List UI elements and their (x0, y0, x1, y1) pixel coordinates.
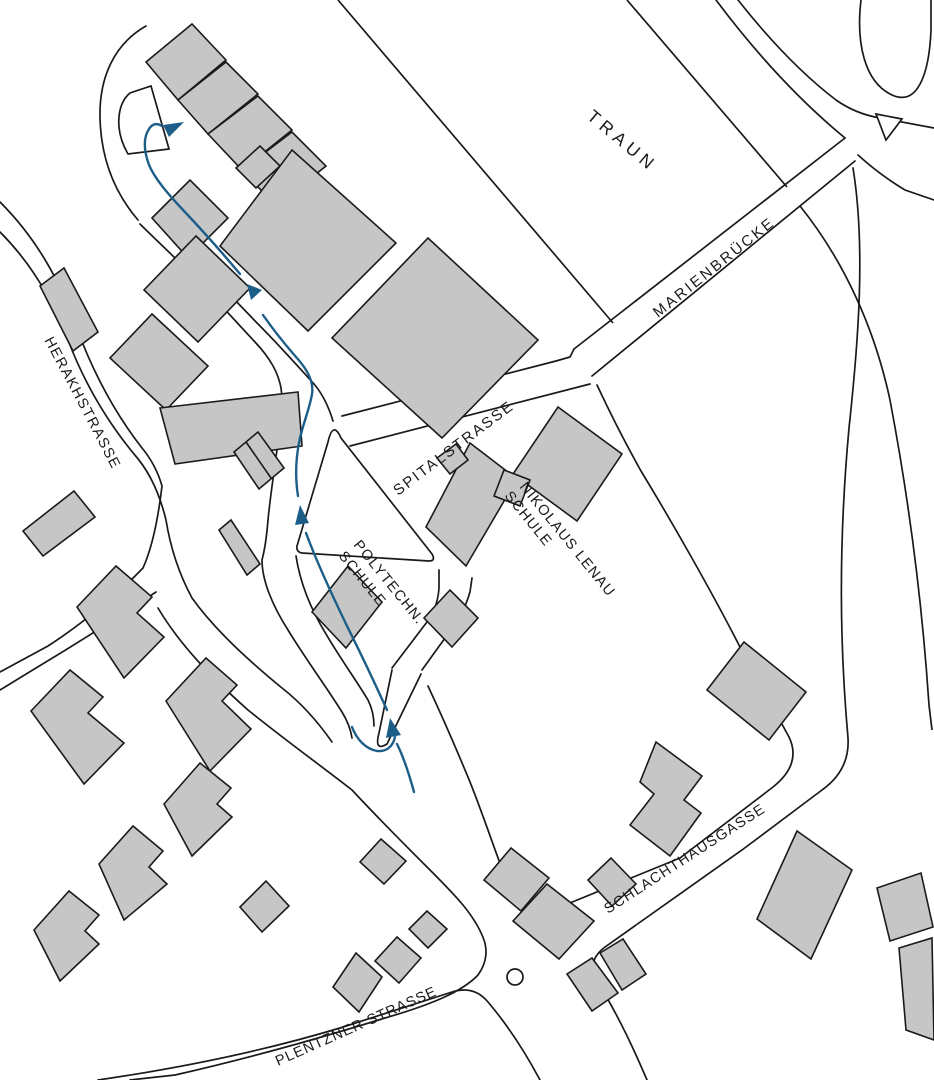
street-map: TRAUNMARIENBRÜCKESPITALSTRASSENIKOLAUS L… (0, 0, 934, 1080)
roundabout-circle (507, 969, 523, 985)
map-canvas: TRAUNMARIENBRÜCKESPITALSTRASSENIKOLAUS L… (0, 0, 934, 1080)
